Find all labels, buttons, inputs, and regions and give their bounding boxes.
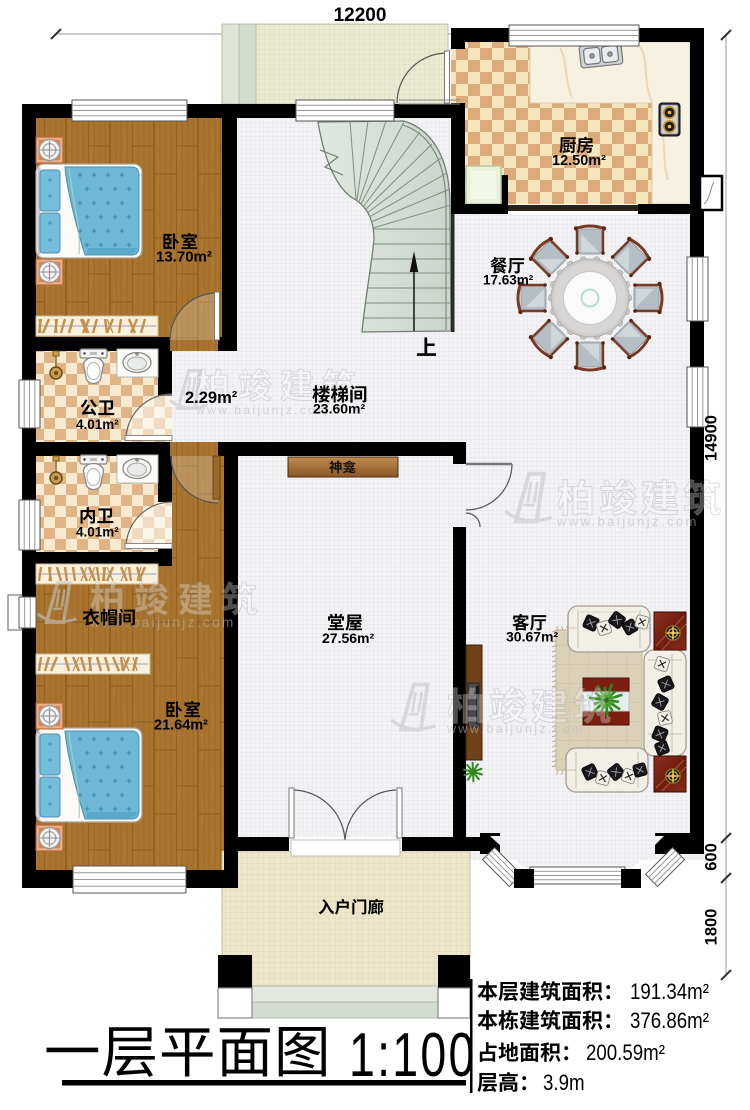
svg-text:13.70m²: 13.70m² [156, 249, 212, 266]
svg-text:12200: 12200 [334, 5, 387, 26]
svg-text:4.01m²: 4.01m² [76, 417, 119, 432]
svg-text:200.59m²: 200.59m² [586, 1042, 665, 1066]
svg-text:4.01m²: 4.01m² [76, 525, 119, 540]
svg-text:www.baijunjz.com: www.baijunjz.com [446, 722, 585, 736]
svg-text:23.60m²: 23.60m² [313, 401, 365, 417]
svg-text:21.64m²: 21.64m² [154, 718, 208, 734]
svg-text:191.34m²: 191.34m² [630, 981, 709, 1005]
svg-text:30.67m²: 30.67m² [506, 629, 558, 645]
svg-text:12.50m²: 12.50m² [552, 153, 606, 169]
svg-text:27.56m²: 27.56m² [322, 630, 374, 646]
svg-text:376.86m²: 376.86m² [630, 1010, 709, 1034]
svg-text:17.63m²: 17.63m² [483, 273, 534, 288]
svg-text:2.29m²: 2.29m² [185, 389, 238, 407]
svg-text:14900: 14900 [703, 415, 721, 461]
svg-text:1:100: 1:100 [349, 1019, 477, 1089]
svg-text:www.baijunjz.com: www.baijunjz.com [556, 514, 699, 529]
svg-text:3.9m: 3.9m [543, 1072, 585, 1096]
svg-text:1800: 1800 [703, 909, 721, 946]
svg-text:600: 600 [703, 843, 721, 871]
